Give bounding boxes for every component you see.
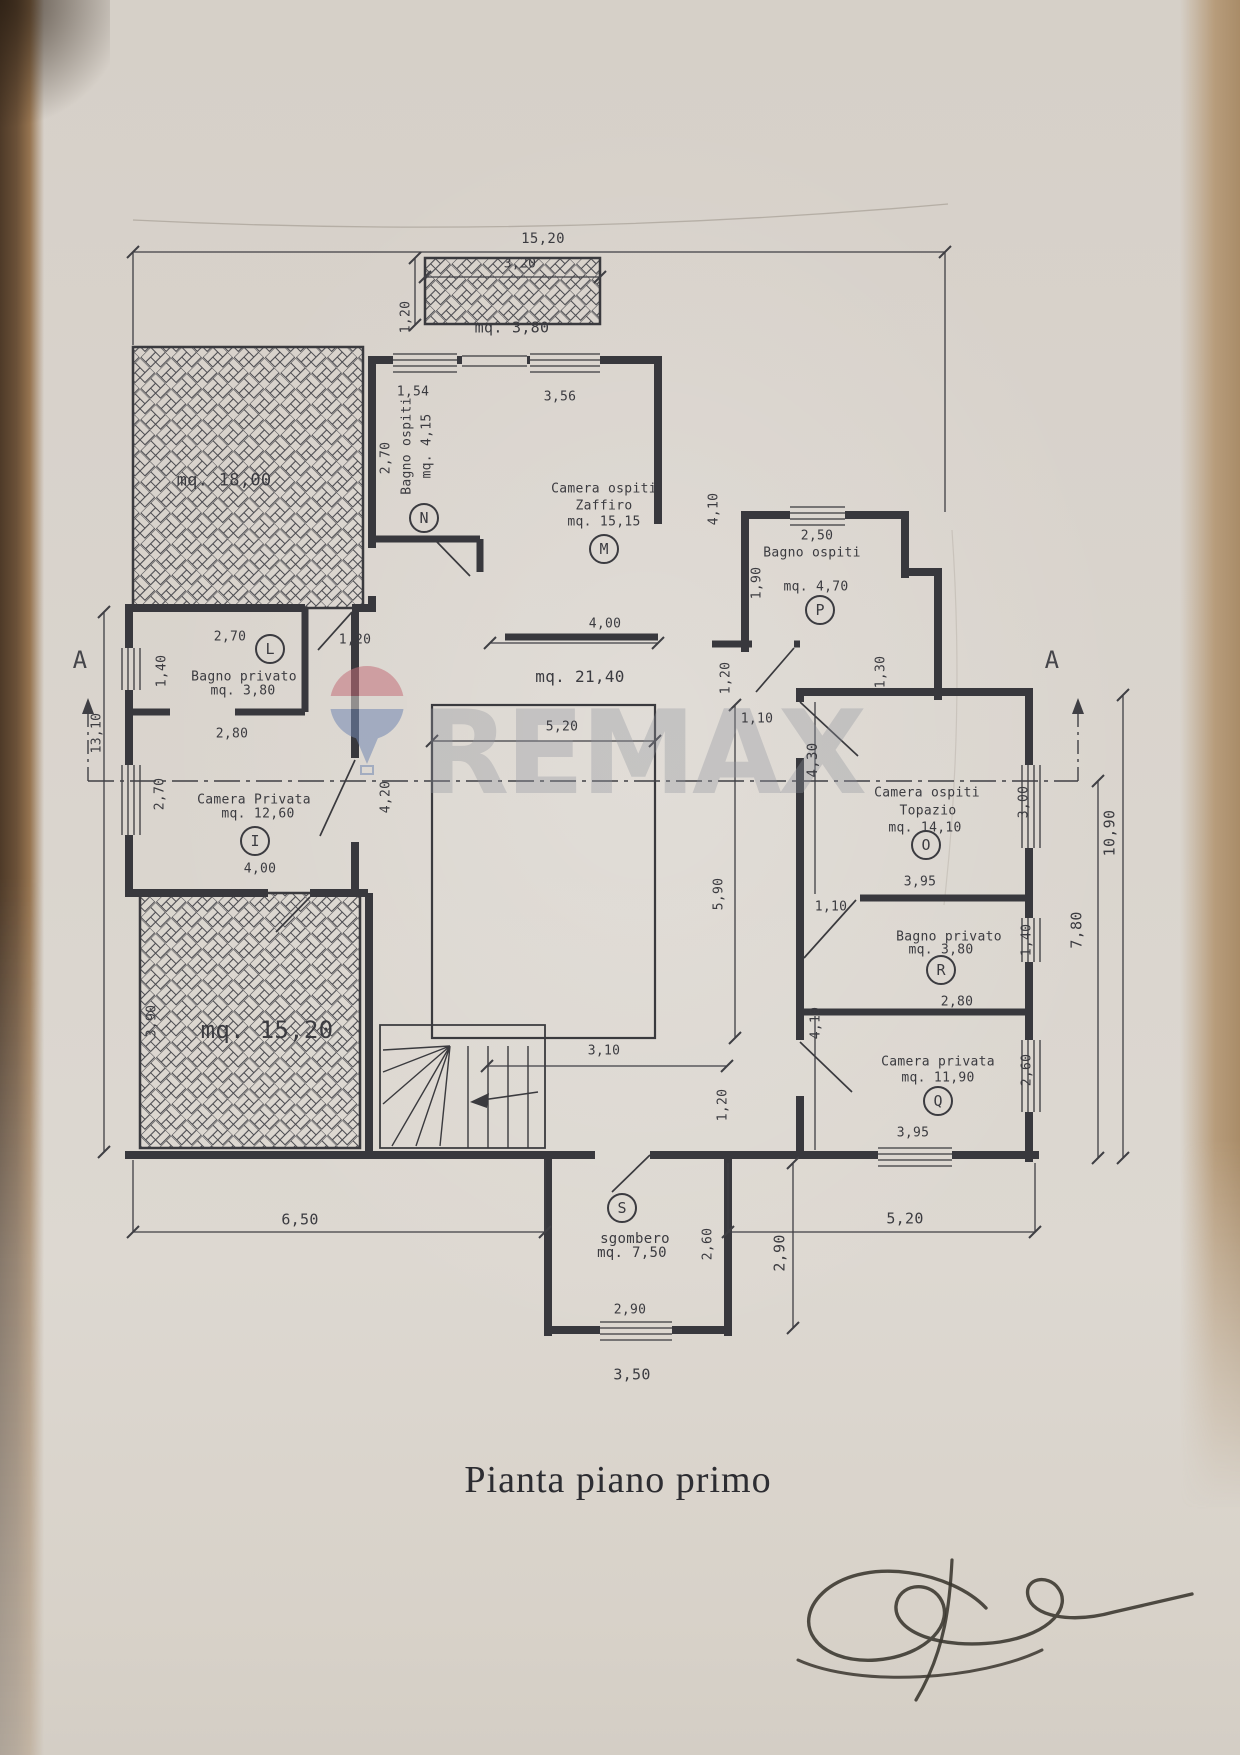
paper-crease-2 [944, 530, 957, 905]
stair-arrow-head [470, 1093, 489, 1108]
remax-watermark: REMAX [327, 666, 866, 821]
stair-outline [380, 1025, 545, 1148]
plan-title: Pianta piano primo [464, 1458, 771, 1502]
paper-crease [133, 204, 948, 227]
remax-balloon-icon [327, 666, 407, 774]
scanned-floorplan-photo: REMAX mq. 3,80mq. 18,00mq. 21,40mq. 15,2… [0, 0, 1240, 1755]
signature [798, 1560, 1192, 1700]
remax-watermark-text: REMAX [420, 686, 866, 821]
section-arrow-left [82, 698, 94, 714]
section-arrow-right [1072, 698, 1084, 714]
stair-direction-arrow [482, 1092, 538, 1100]
terrace-15-hatch [140, 893, 360, 1148]
terrace-18-hatch [133, 347, 363, 608]
balcony-hatch [425, 258, 600, 324]
